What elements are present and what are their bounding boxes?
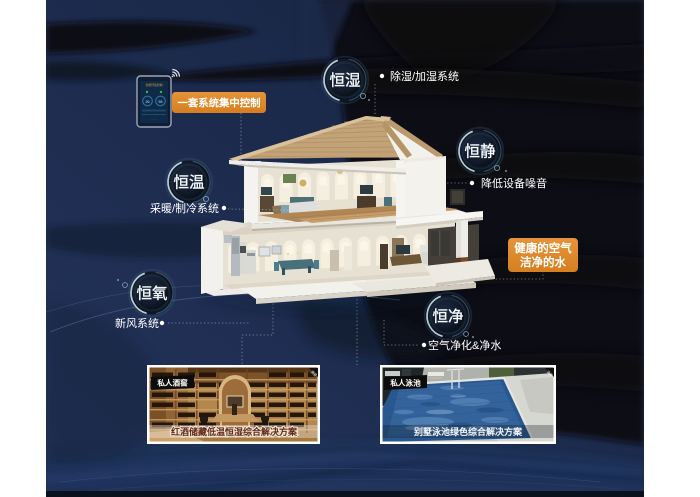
svg-text:私人泳池: 私人泳池 <box>389 378 421 388</box>
svg-text:空气净化&净水: 空气净化&净水 <box>428 338 501 352</box>
svg-text:红酒储藏低温恒湿综合解决方案: 红酒储藏低温恒湿综合解决方案 <box>171 426 298 437</box>
svg-text:恒湿: 恒湿 <box>329 72 360 90</box>
svg-text:· · · ·: · · · · <box>151 117 158 121</box>
svg-text:恒氧: 恒氧 <box>136 285 167 303</box>
svg-text:55: 55 <box>159 100 163 104</box>
svg-text:洁净的水: 洁净的水 <box>520 255 566 269</box>
svg-text:采暖/制冷系统: 采暖/制冷系统 <box>150 202 219 215</box>
svg-text:降低设备噪音: 降低设备噪音 <box>481 176 547 190</box>
svg-text:恒温: 恒温 <box>173 174 204 192</box>
svg-text:恒净: 恒净 <box>432 308 463 326</box>
svg-text:新风系统: 新风系统 <box>115 316 159 330</box>
svg-text:健康的空气: 健康的空气 <box>514 241 572 255</box>
svg-text:恒静: 恒静 <box>464 143 495 161</box>
svg-text:除湿/加湿系统: 除湿/加湿系统 <box>390 69 459 83</box>
svg-text:26: 26 <box>146 100 150 104</box>
svg-text:一套系统集中控制: 一套系统集中控制 <box>177 97 260 110</box>
svg-text:别墅泳池绿色综合解决方案: 别墅泳池绿色综合解决方案 <box>413 426 523 437</box>
svg-text:私人酒窖: 私人酒窖 <box>156 378 188 388</box>
svg-text:智能环境控制: 智能环境控制 <box>146 83 163 87</box>
